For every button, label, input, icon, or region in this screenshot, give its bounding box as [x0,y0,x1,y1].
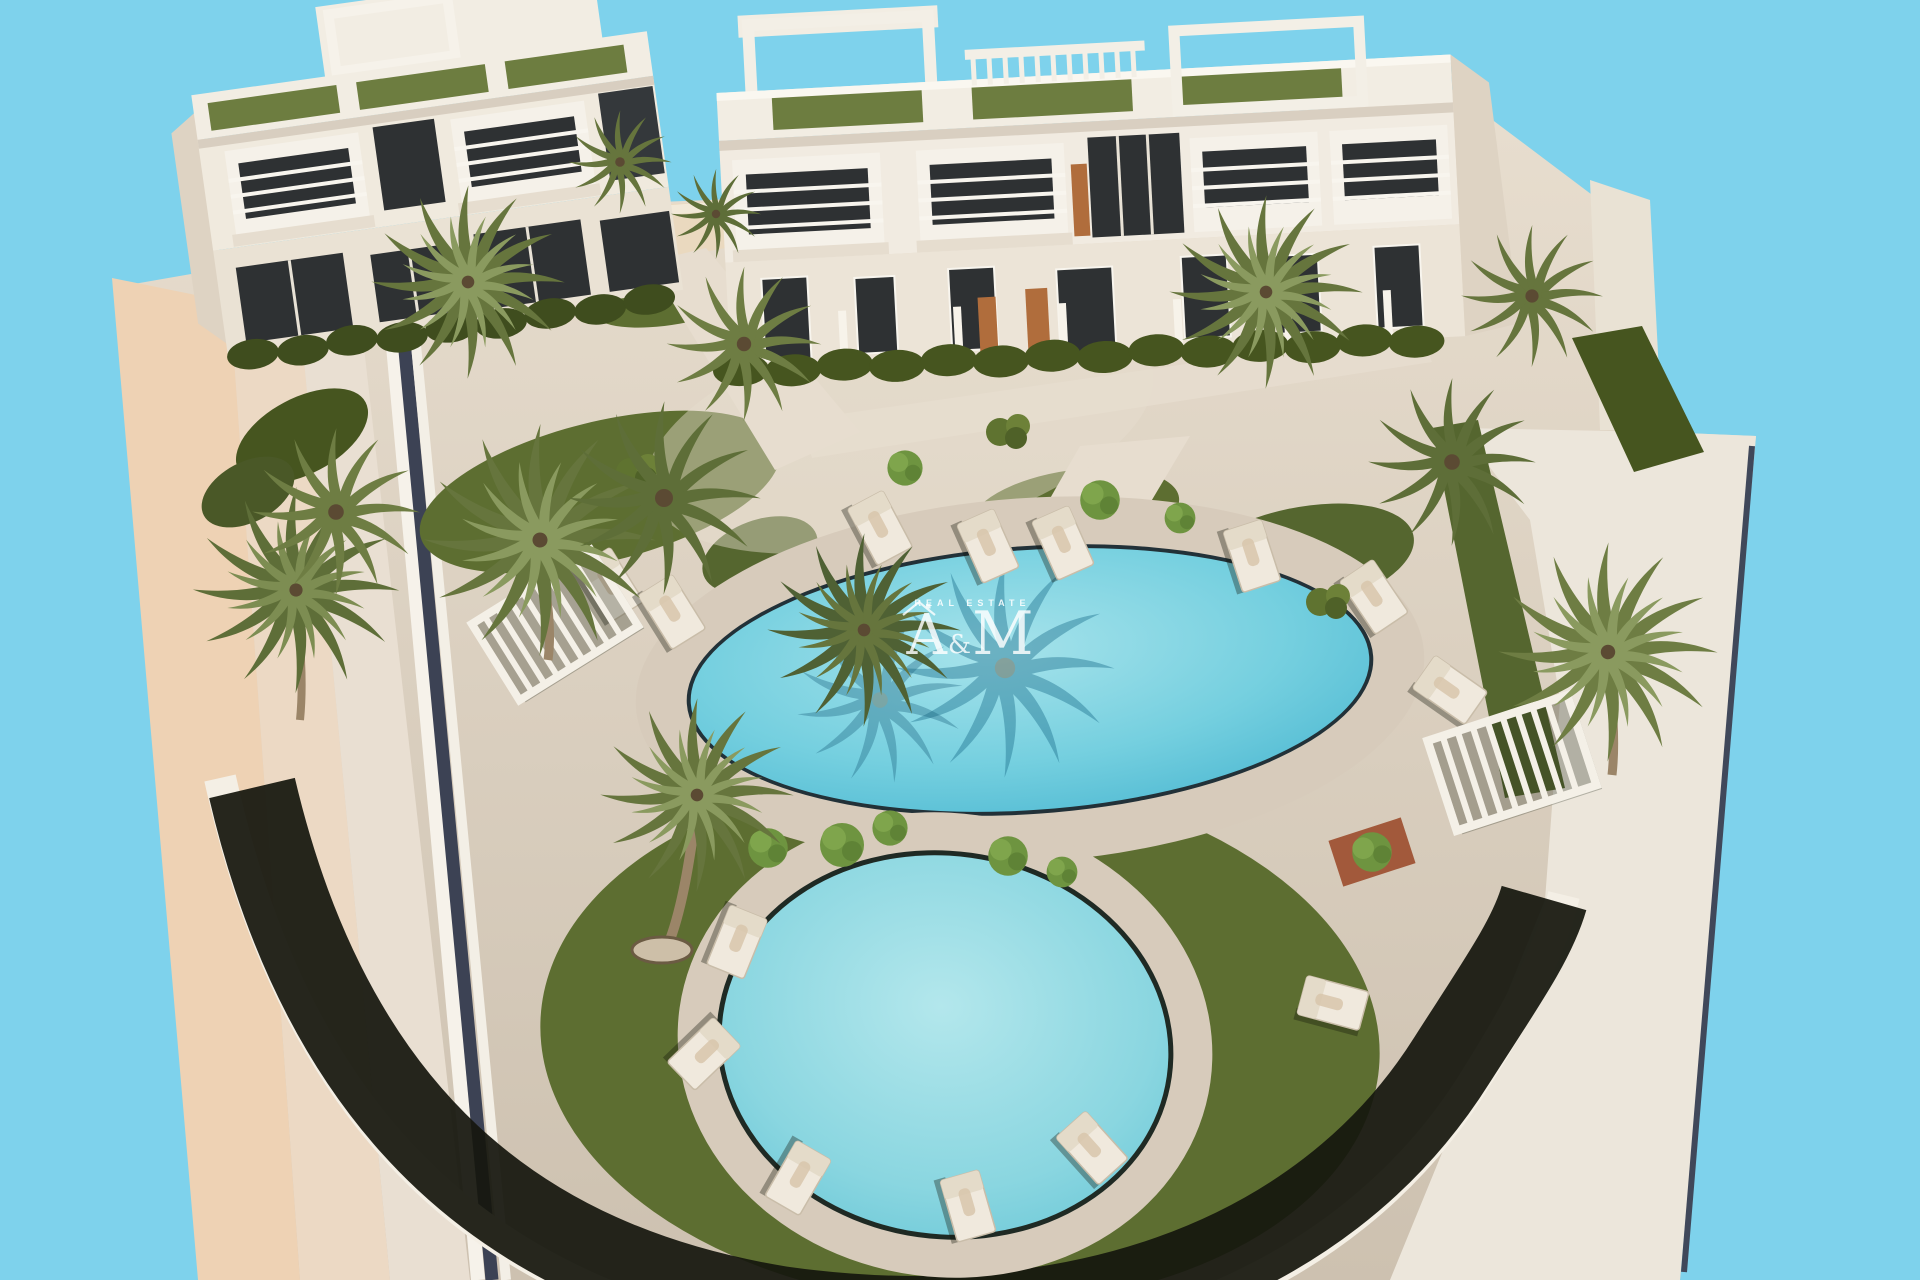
render-image: REAL ESTATE A & M [0,0,1920,1280]
watermark-letter-m: M [972,610,1033,659]
window [373,119,446,211]
balcony [912,143,1073,253]
watermark-ampersand: & [948,635,971,656]
house-icon [900,598,938,616]
balcony [220,132,375,247]
balcony [1329,125,1452,225]
window [1087,133,1184,238]
balcony [728,152,889,262]
watermark: REAL ESTATE A & M [900,598,1040,659]
balcony [446,100,601,215]
balcony [1189,132,1322,233]
watermark-letter-a: A [906,613,946,659]
watermark-letters: A & M [900,610,1040,659]
